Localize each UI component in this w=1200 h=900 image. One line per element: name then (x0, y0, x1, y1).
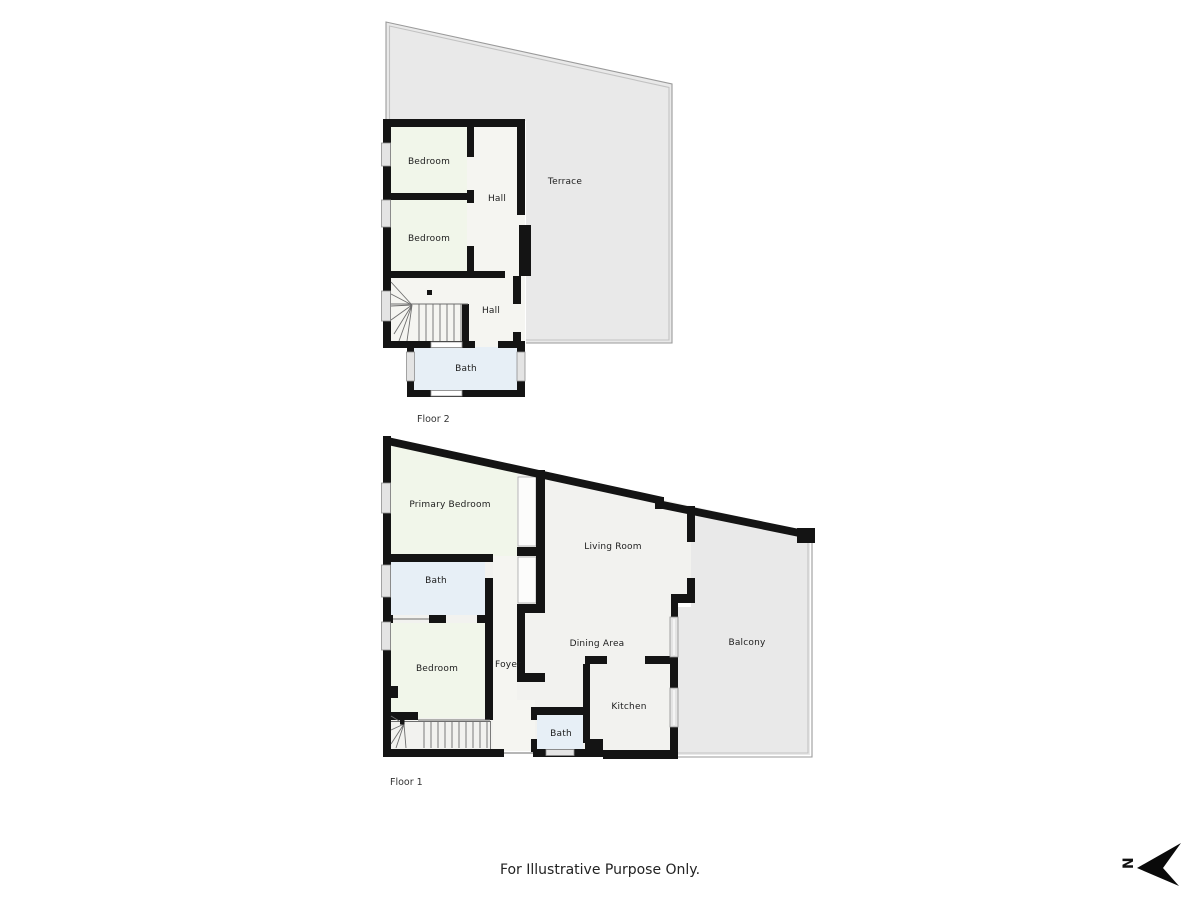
window-icon (517, 352, 525, 381)
floorplan-page: Bedroom Bedroom Hall Hall Bath Terrace F… (0, 0, 1200, 900)
floor1-caption: Floor 1 (390, 777, 423, 788)
room-label-bedroom-f1: Bedroom (416, 664, 458, 674)
floor2-caption: Floor 2 (417, 414, 450, 425)
room-label-foyer: Foyer (495, 660, 521, 670)
room-label-dining-area: Dining Area (570, 639, 625, 649)
room-label-primary-bedroom: Primary Bedroom (409, 500, 490, 510)
floor1-plan: Primary Bedroom Bath Bedroom Foyer Livin… (382, 436, 816, 788)
room-label-balcony: Balcony (728, 638, 766, 648)
window-icon (382, 143, 391, 166)
window-icon (407, 352, 415, 381)
disclaimer-text: For Illustrative Purpose Only. (500, 862, 700, 878)
window-icon (382, 483, 391, 513)
floorplan-drawing: Bedroom Bedroom Hall Hall Bath Terrace F… (0, 0, 1200, 900)
room-label-bedroom-bottom: Bedroom (408, 234, 450, 244)
closet-lower (518, 557, 536, 603)
north-letter: N (1121, 857, 1137, 869)
window-icon (382, 291, 391, 321)
room-label-living-room: Living Room (584, 542, 641, 552)
closet-upper (518, 477, 536, 546)
window-icon (546, 750, 574, 756)
window-icon (431, 391, 462, 397)
room-label-terrace: Terrace (547, 177, 582, 187)
floor2-plan: Bedroom Bedroom Hall Hall Bath Terrace F… (382, 22, 673, 425)
window-icon (431, 342, 462, 348)
room-label-kitchen: Kitchen (611, 702, 646, 712)
room-label-bath-f2: Bath (455, 364, 477, 374)
room-label-hall-lower: Hall (482, 306, 500, 316)
window-icon (382, 565, 391, 597)
bath-top-area (391, 562, 485, 615)
room-label-bedroom-top: Bedroom (408, 157, 450, 167)
room-label-bath-bottom: Bath (550, 729, 572, 739)
north-compass-icon: N (1121, 843, 1181, 886)
north-arrow-icon (1137, 843, 1181, 886)
window-icon (382, 622, 391, 650)
window-icon (382, 200, 391, 227)
room-label-bath-top: Bath (425, 576, 447, 586)
stair-hall-area (493, 700, 535, 751)
room-label-hall-upper: Hall (488, 194, 506, 204)
